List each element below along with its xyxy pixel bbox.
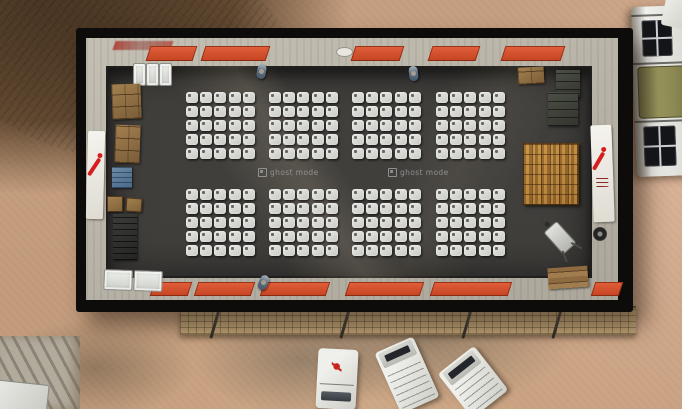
bed[interactable] — [450, 189, 462, 200]
bed[interactable] — [229, 106, 241, 117]
bed[interactable] — [380, 92, 392, 103]
bed[interactable] — [312, 120, 324, 131]
bed[interactable] — [450, 231, 462, 242]
bed[interactable] — [450, 92, 462, 103]
bed[interactable] — [479, 120, 491, 131]
bed[interactable] — [352, 92, 364, 103]
bed[interactable] — [326, 120, 338, 131]
bed[interactable] — [297, 245, 309, 256]
bed[interactable] — [380, 148, 392, 159]
bed[interactable] — [312, 217, 324, 228]
bed[interactable] — [409, 245, 421, 256]
bed[interactable] — [269, 106, 281, 117]
bed[interactable] — [450, 217, 462, 228]
bed[interactable] — [436, 231, 448, 242]
bed[interactable] — [312, 245, 324, 256]
bed[interactable] — [269, 203, 281, 214]
bed[interactable] — [395, 120, 407, 131]
bed[interactable] — [312, 231, 324, 242]
bed[interactable] — [297, 134, 309, 145]
cardboard-box-stack[interactable] — [111, 84, 141, 120]
bed[interactable] — [283, 106, 295, 117]
bed[interactable] — [436, 189, 448, 200]
bed[interactable] — [479, 217, 491, 228]
bed[interactable] — [186, 120, 198, 131]
bed[interactable] — [450, 203, 462, 214]
bed[interactable] — [479, 92, 491, 103]
bed[interactable] — [283, 231, 295, 242]
bed[interactable] — [269, 134, 281, 145]
bed[interactable] — [297, 231, 309, 242]
bed[interactable] — [366, 92, 378, 103]
bed[interactable] — [409, 120, 421, 131]
bed[interactable] — [283, 148, 295, 159]
bed[interactable] — [395, 134, 407, 145]
bed[interactable] — [479, 245, 491, 256]
bed[interactable] — [200, 120, 212, 131]
bed[interactable] — [366, 189, 378, 200]
bed[interactable] — [479, 231, 491, 242]
bed[interactable] — [326, 189, 338, 200]
bed[interactable] — [186, 217, 198, 228]
bed[interactable] — [450, 134, 462, 145]
bed[interactable] — [395, 203, 407, 214]
bed[interactable] — [366, 120, 378, 131]
bed[interactable] — [269, 231, 281, 242]
ghost-mode-icon — [388, 168, 397, 177]
bed[interactable] — [366, 217, 378, 228]
bed-layer — [0, 0, 682, 409]
bed[interactable] — [214, 120, 226, 131]
bed[interactable] — [243, 92, 255, 103]
person-figure[interactable] — [408, 66, 419, 82]
bed[interactable] — [409, 134, 421, 145]
bed[interactable] — [409, 92, 421, 103]
bed[interactable] — [186, 134, 198, 145]
bed[interactable] — [464, 231, 476, 242]
bed[interactable] — [450, 106, 462, 117]
bed[interactable] — [352, 217, 364, 228]
bed[interactable] — [229, 92, 241, 103]
bed[interactable] — [464, 134, 476, 145]
bed[interactable] — [493, 203, 505, 214]
bed[interactable] — [326, 134, 338, 145]
bed[interactable] — [326, 148, 338, 159]
bed[interactable] — [283, 92, 295, 103]
cardboard-box-stack[interactable] — [114, 125, 140, 164]
bed[interactable] — [229, 134, 241, 145]
bed[interactable] — [269, 217, 281, 228]
white-cot[interactable] — [146, 63, 159, 86]
bed[interactable] — [229, 203, 241, 214]
bed[interactable] — [479, 189, 491, 200]
bed[interactable] — [243, 134, 255, 145]
bed[interactable] — [450, 148, 462, 159]
ghost-mode-label: ghost mode — [270, 168, 319, 177]
bed[interactable] — [229, 231, 241, 242]
bed[interactable] — [436, 203, 448, 214]
bed[interactable] — [229, 189, 241, 200]
bed[interactable] — [464, 106, 476, 117]
bed[interactable] — [464, 245, 476, 256]
blue-crate[interactable] — [112, 167, 132, 188]
bed[interactable] — [326, 106, 338, 117]
bed[interactable] — [366, 231, 378, 242]
bed[interactable] — [366, 106, 378, 117]
bed[interactable] — [297, 148, 309, 159]
bed[interactable] — [352, 189, 364, 200]
ghost-mode-label: ghost mode — [400, 168, 449, 177]
bed[interactable] — [200, 134, 212, 145]
bed[interactable] — [380, 245, 392, 256]
bed[interactable] — [200, 245, 212, 256]
bed[interactable] — [186, 245, 198, 256]
ghost-mode-watermark: ghost mode — [388, 168, 449, 177]
bed[interactable] — [352, 203, 364, 214]
bed[interactable] — [380, 203, 392, 214]
bed[interactable] — [493, 217, 505, 228]
bed[interactable] — [214, 231, 226, 242]
bed[interactable] — [464, 217, 476, 228]
bed[interactable] — [214, 148, 226, 159]
bed[interactable] — [380, 231, 392, 242]
bed[interactable] — [229, 148, 241, 159]
bed[interactable] — [493, 92, 505, 103]
bed[interactable] — [326, 203, 338, 214]
bed[interactable] — [243, 231, 255, 242]
bed[interactable] — [214, 203, 226, 214]
bed[interactable] — [186, 148, 198, 159]
bed[interactable] — [243, 120, 255, 131]
bed[interactable] — [493, 106, 505, 117]
bed[interactable] — [352, 106, 364, 117]
bed[interactable] — [479, 134, 491, 145]
bed[interactable] — [366, 134, 378, 145]
bed[interactable] — [409, 148, 421, 159]
cardboard-box[interactable] — [518, 66, 545, 84]
bed[interactable] — [243, 245, 255, 256]
bed[interactable] — [380, 217, 392, 228]
bed[interactable] — [200, 189, 212, 200]
bed[interactable] — [464, 92, 476, 103]
bed[interactable] — [269, 245, 281, 256]
white-cot[interactable] — [159, 63, 172, 86]
bed[interactable] — [409, 203, 421, 214]
bed[interactable] — [214, 245, 226, 256]
bed[interactable] — [380, 106, 392, 117]
dark-shelf-stack[interactable] — [113, 214, 137, 260]
bed[interactable] — [352, 148, 364, 159]
bed[interactable] — [479, 106, 491, 117]
bed[interactable] — [186, 189, 198, 200]
bed[interactable] — [352, 245, 364, 256]
bed[interactable] — [243, 148, 255, 159]
bed[interactable] — [214, 134, 226, 145]
bed[interactable] — [450, 120, 462, 131]
bed[interactable] — [326, 245, 338, 256]
bed[interactable] — [464, 203, 476, 214]
bed[interactable] — [395, 148, 407, 159]
bed[interactable] — [464, 148, 476, 159]
bed[interactable] — [283, 189, 295, 200]
wooden-box[interactable] — [107, 196, 123, 212]
bed[interactable] — [243, 189, 255, 200]
bed[interactable] — [326, 92, 338, 103]
white-cot[interactable] — [103, 269, 133, 291]
bed[interactable] — [312, 134, 324, 145]
bed[interactable] — [479, 148, 491, 159]
bed[interactable] — [436, 92, 448, 103]
bed[interactable] — [312, 189, 324, 200]
bed[interactable] — [283, 134, 295, 145]
bed[interactable] — [409, 189, 421, 200]
bed[interactable] — [214, 92, 226, 103]
bed[interactable] — [436, 120, 448, 131]
bed[interactable] — [229, 245, 241, 256]
bed[interactable] — [326, 231, 338, 242]
bed[interactable] — [464, 189, 476, 200]
bed[interactable] — [229, 217, 241, 228]
bed[interactable] — [366, 203, 378, 214]
bed[interactable] — [297, 217, 309, 228]
bed[interactable] — [200, 203, 212, 214]
dark-crate-stack[interactable] — [548, 92, 578, 126]
bed[interactable] — [464, 120, 476, 131]
bed[interactable] — [436, 134, 448, 145]
bed[interactable] — [312, 106, 324, 117]
bed[interactable] — [200, 106, 212, 117]
bed[interactable] — [436, 148, 448, 159]
bed[interactable] — [352, 120, 364, 131]
bed[interactable] — [214, 189, 226, 200]
bed[interactable] — [229, 120, 241, 131]
bed[interactable] — [312, 203, 324, 214]
bed[interactable] — [409, 231, 421, 242]
bed[interactable] — [297, 120, 309, 131]
bed[interactable] — [283, 217, 295, 228]
ghost-mode-watermark: ghost mode — [258, 168, 319, 177]
bed[interactable] — [186, 106, 198, 117]
bed[interactable] — [283, 203, 295, 214]
bed[interactable] — [436, 245, 448, 256]
bed[interactable] — [200, 148, 212, 159]
bed[interactable] — [312, 148, 324, 159]
bed[interactable] — [366, 245, 378, 256]
bed[interactable] — [200, 231, 212, 242]
bed[interactable] — [395, 245, 407, 256]
bed[interactable] — [493, 231, 505, 242]
bed[interactable] — [214, 217, 226, 228]
bed[interactable] — [366, 148, 378, 159]
bed[interactable] — [436, 217, 448, 228]
bed[interactable] — [395, 92, 407, 103]
bed[interactable] — [243, 217, 255, 228]
wooden-box[interactable] — [126, 197, 143, 212]
bed[interactable] — [283, 245, 295, 256]
bed[interactable] — [269, 189, 281, 200]
bed[interactable] — [283, 120, 295, 131]
bed[interactable] — [450, 245, 462, 256]
bed[interactable] — [186, 92, 198, 103]
bed[interactable] — [297, 189, 309, 200]
ghost-mode-icon — [258, 168, 267, 177]
bed[interactable] — [269, 120, 281, 131]
bed[interactable] — [214, 106, 226, 117]
bed[interactable] — [352, 231, 364, 242]
bed[interactable] — [352, 134, 364, 145]
bed[interactable] — [395, 231, 407, 242]
bed[interactable] — [493, 148, 505, 159]
bed[interactable] — [380, 134, 392, 145]
bed[interactable] — [297, 203, 309, 214]
bed[interactable] — [312, 92, 324, 103]
bed[interactable] — [297, 92, 309, 103]
bed[interactable] — [297, 106, 309, 117]
bed[interactable] — [269, 92, 281, 103]
bed[interactable] — [409, 106, 421, 117]
bed[interactable] — [200, 92, 212, 103]
bed[interactable] — [269, 148, 281, 159]
bed[interactable] — [243, 203, 255, 214]
wooden-pallet[interactable] — [523, 143, 579, 205]
wood-planks[interactable] — [547, 266, 588, 290]
bed[interactable] — [186, 203, 198, 214]
bed[interactable] — [479, 203, 491, 214]
bed[interactable] — [395, 106, 407, 117]
white-cot[interactable] — [133, 270, 163, 292]
bed[interactable] — [493, 134, 505, 145]
bed[interactable] — [493, 120, 505, 131]
bed[interactable] — [380, 120, 392, 131]
bed[interactable] — [436, 106, 448, 117]
bed[interactable] — [395, 217, 407, 228]
bed[interactable] — [409, 217, 421, 228]
bed[interactable] — [186, 231, 198, 242]
bed[interactable] — [395, 189, 407, 200]
bed[interactable] — [380, 189, 392, 200]
bed[interactable] — [200, 217, 212, 228]
bed[interactable] — [493, 245, 505, 256]
bed[interactable] — [326, 217, 338, 228]
scene: ghost mode ghost mode — [0, 0, 682, 409]
metal-drum[interactable] — [593, 227, 607, 241]
bed[interactable] — [493, 189, 505, 200]
bed[interactable] — [243, 106, 255, 117]
